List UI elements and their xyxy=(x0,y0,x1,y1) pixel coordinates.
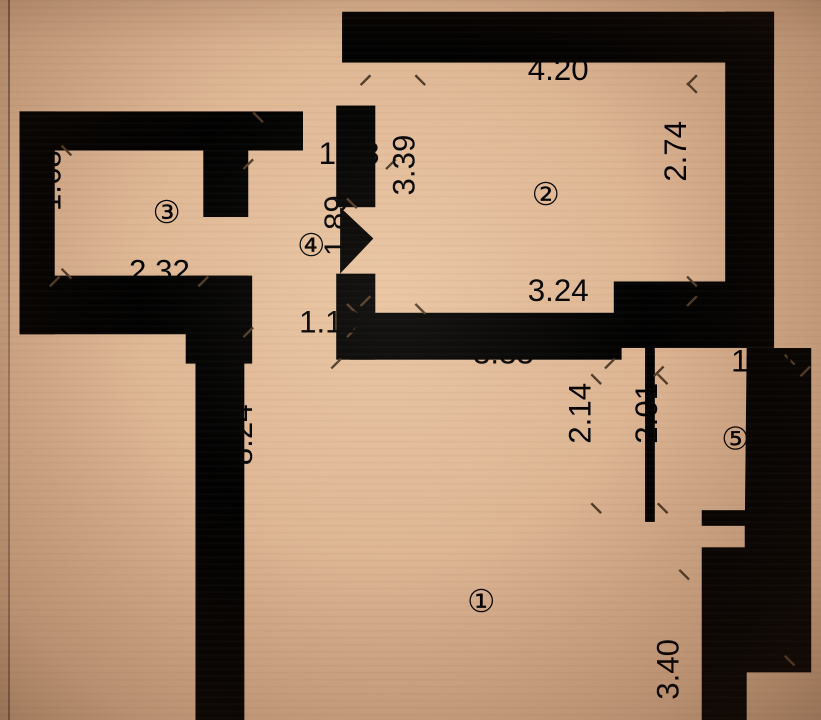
dimension-labels: 4.20 2.74 3.39 3.24 1.88 1.89 1.13 2.32 … xyxy=(33,52,792,720)
room-number-living: ① xyxy=(467,584,495,619)
dim-label: 3.33 xyxy=(473,336,534,371)
page-edge-shadow xyxy=(0,0,8,720)
dim-label: 3.40 xyxy=(650,639,685,700)
dim-label: 4.20 xyxy=(528,52,589,87)
dim-label: 2.01 xyxy=(629,383,664,444)
dim-label: 1.88 xyxy=(319,136,380,171)
dim-label: 2.74 xyxy=(658,121,693,182)
dim-label: 8.24 xyxy=(224,404,259,465)
room-number-hol: ④ xyxy=(297,228,325,263)
room-number-camera: ② xyxy=(532,177,560,212)
page-edge-line xyxy=(8,0,10,720)
dim-label: 1.13 xyxy=(299,304,360,339)
punch-hole xyxy=(0,0,23,25)
dim-label: 3.39 xyxy=(386,135,421,196)
dim-label: 3.24 xyxy=(528,273,589,308)
room-number-baie: ③ xyxy=(152,195,180,230)
floor-plan-drawing: 4.20 2.74 3.39 3.24 1.88 1.89 1.13 2.32 … xyxy=(0,0,821,720)
scanned-document-page: 4.20 2.74 3.39 3.24 1.88 1.89 1.13 2.32 … xyxy=(0,0,821,720)
dim-label: 1.90 xyxy=(731,343,792,378)
walls-hatched xyxy=(20,12,800,720)
dim-label: 3.74 xyxy=(756,447,791,508)
room-number-balcon: ⑤ xyxy=(721,422,749,457)
dim-label: 1.68 xyxy=(33,150,68,211)
dim-label: 2.32 xyxy=(129,253,190,288)
dim-label: 2.14 xyxy=(562,383,597,444)
